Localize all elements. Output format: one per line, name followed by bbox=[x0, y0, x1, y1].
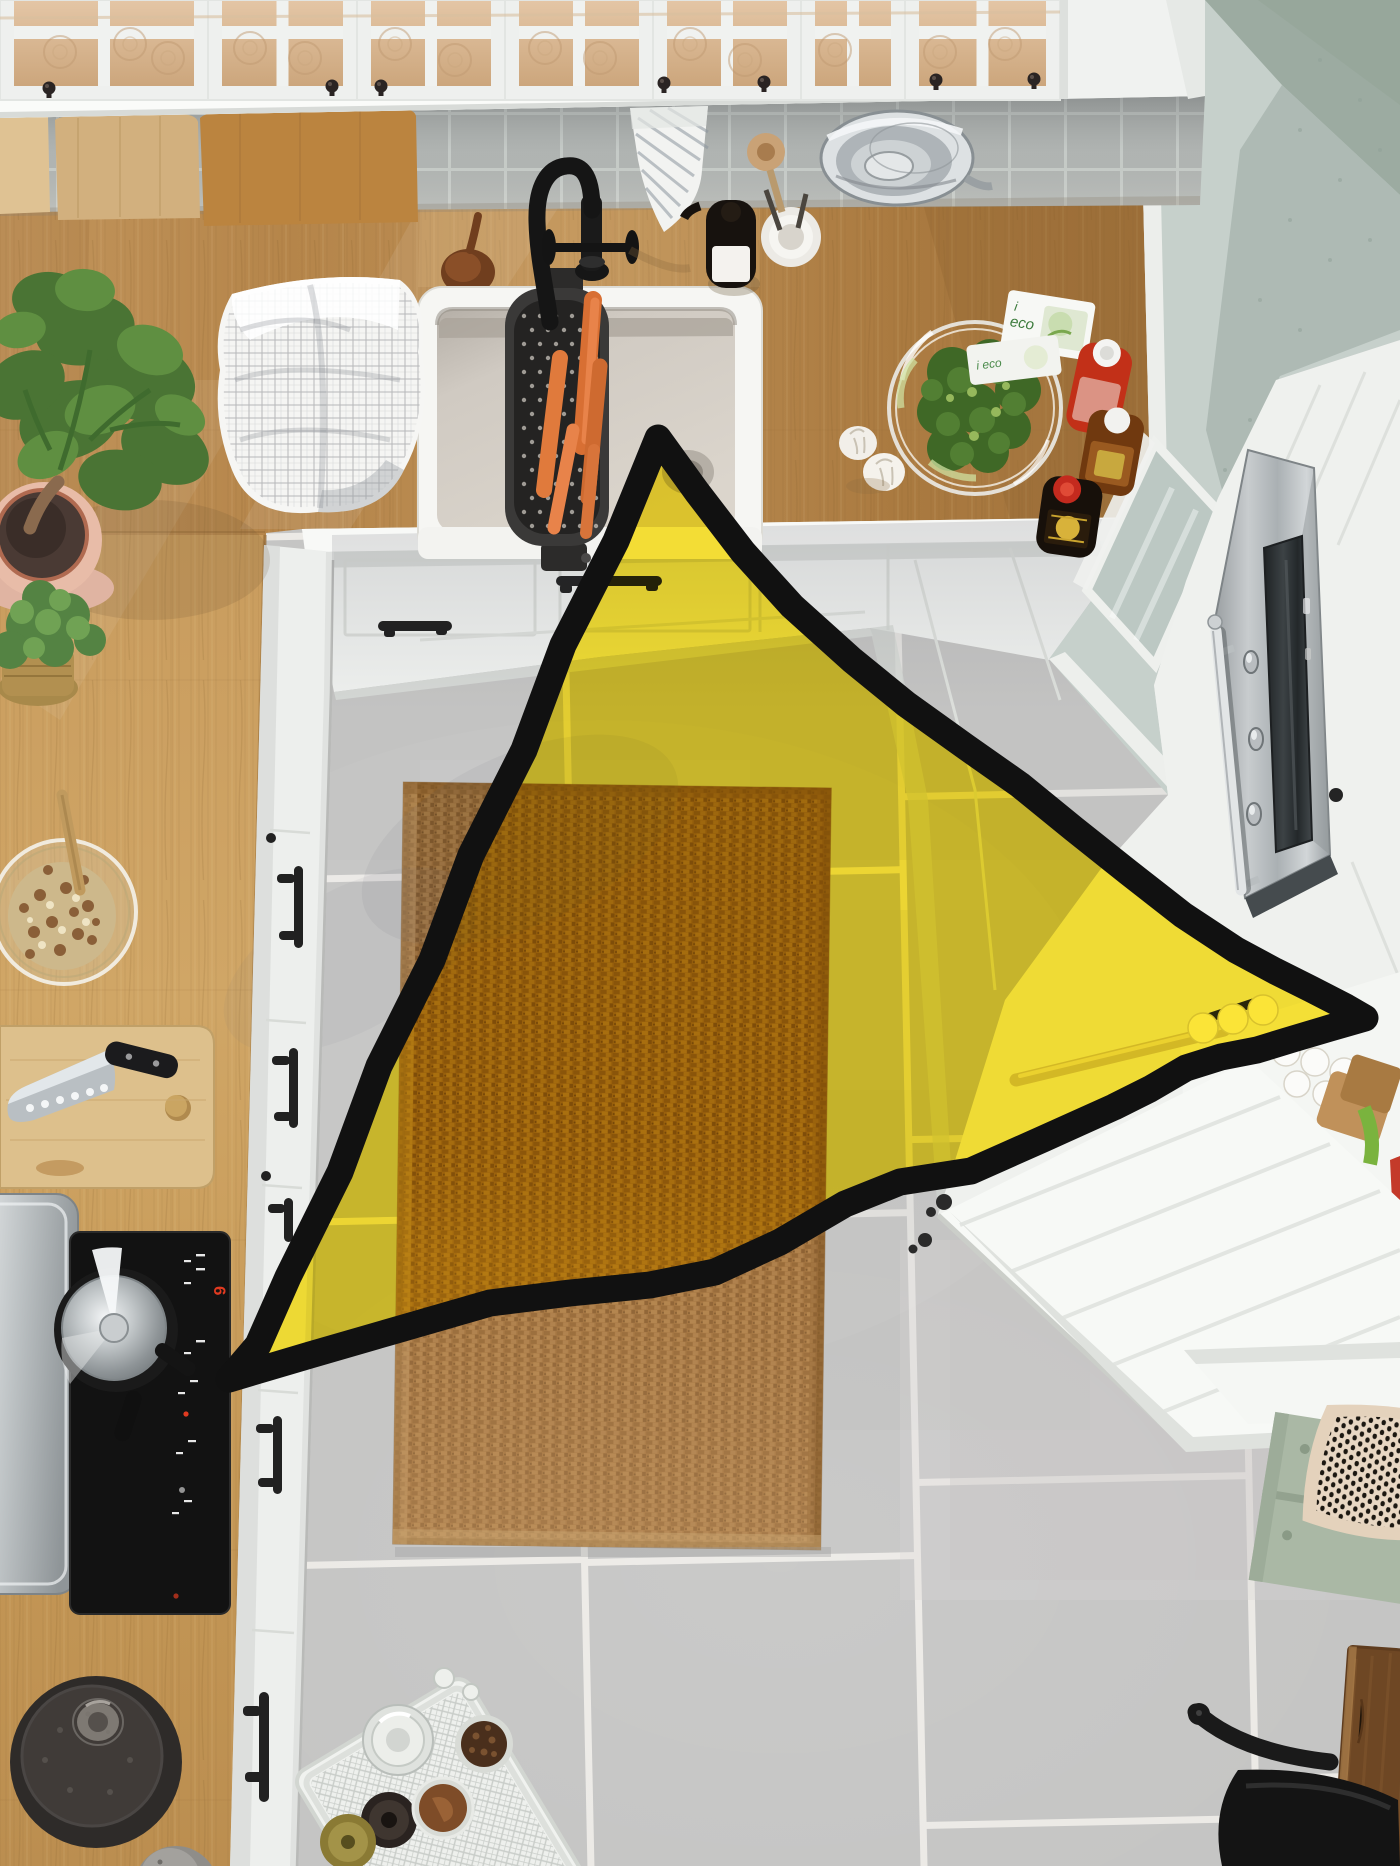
svg-text:6: 6 bbox=[210, 1286, 229, 1295]
